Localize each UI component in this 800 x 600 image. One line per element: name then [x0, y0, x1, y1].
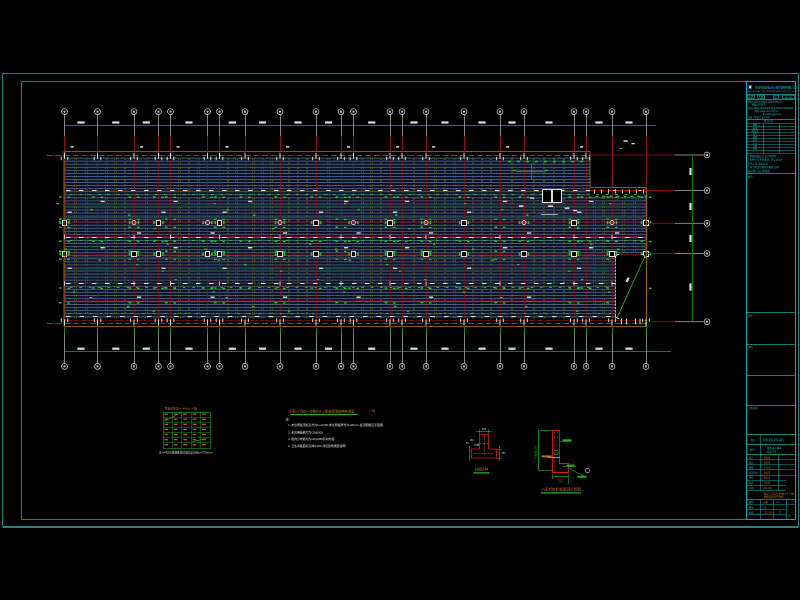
svg-text:会 签 栏: 会 签 栏 [764, 119, 774, 123]
svg-text:* 施工前请仔细核对图纸 如有: * 施工前请仔细核对图纸 如有 [748, 165, 780, 169]
svg-text:其他工程 违者必究: 其他工程 违者必究 [748, 161, 768, 165]
svg-text:板配筋结构布置图: 板配筋结构布置图 [764, 495, 785, 499]
svg-text:3. 板内分布筋均为C6@250双向布置.: 3. 板内分布筋均为C6@250双向布置. [288, 436, 335, 441]
svg-text:楼板配筋率(4~46)/(A~L轴): 楼板配筋率(4~46)/(A~L轴) [165, 406, 198, 410]
svg-text:2013.06: 2013.06 [764, 488, 773, 490]
svg-text:柱帽: 柱帽 [474, 443, 479, 447]
svg-text:某某某某某某项目: 某某某某某某项目 [763, 438, 784, 442]
svg-text:* 未经许可不得复制、转让或用于: * 未经许可不得复制、转让或用于 [748, 158, 784, 162]
svg-text:E-mail:xx@xx.cn: E-mail:xx@xx.cn [763, 113, 782, 116]
svg-text:某某某建筑设计研究院有限公司: 某某某建筑设计研究院有限公司 [755, 85, 797, 90]
svg-text:小天桥处栏板留洞示意图: 小天桥处栏板留洞示意图 [541, 487, 581, 492]
svg-text:图号: 图号 [750, 448, 755, 452]
svg-text:4. 卫生间板面标高降0.050,详见建筑图纸说明.: 4. 卫生间板面标高降0.050,详见建筑图纸说明. [288, 443, 347, 448]
svg-text:疑问请与 设计院联系: 疑问请与 设计院联系 [748, 169, 771, 173]
svg-text:1. 未注明板顶标高均为H+0.050,未注明板厚均为100: 1. 未注明板顶标高均为H+0.050,未注明板厚均为100mm,板顶钢筋见平面… [288, 422, 384, 427]
svg-text:150: 150 [470, 439, 475, 442]
svg-text:栏板高1200: 栏板高1200 [534, 445, 538, 459]
svg-text:400: 400 [482, 427, 487, 431]
svg-text:250: 250 [558, 481, 563, 484]
svg-text:1:50: 1:50 [369, 409, 375, 413]
svg-text:2. 未注明板筋均为C8@200.: 2. 未注明板筋均为C8@200. [288, 429, 324, 434]
svg-text:注:: 注: [285, 417, 290, 422]
svg-text:工程名称: 工程名称 [748, 406, 758, 410]
svg-text:项目: 项目 [751, 438, 756, 442]
svg-text:250: 250 [502, 452, 507, 455]
svg-text:注:HPB300级钢筋抗拉强度设计值fy=270N/mm: 注:HPB300级钢筋抗拉强度设计值fy=270N/mm [159, 451, 213, 455]
svg-text:四层~六层(5~46轴交A~L轴)板配筋结构布置图: 四层~六层(5~46轴交A~L轴)板配筋结构布置图 [290, 408, 355, 413]
svg-text:备注: 备注 [748, 175, 753, 179]
svg-text:审核: 审核 [748, 345, 753, 349]
svg-text:* 本图纸版权归 设计院所有: * 本图纸版权归 设计院所有 [748, 154, 777, 158]
svg-text:柱帽大样: 柱帽大样 [475, 467, 489, 472]
svg-text:审定: 审定 [748, 314, 753, 318]
svg-text:012345: 012345 [785, 97, 793, 99]
